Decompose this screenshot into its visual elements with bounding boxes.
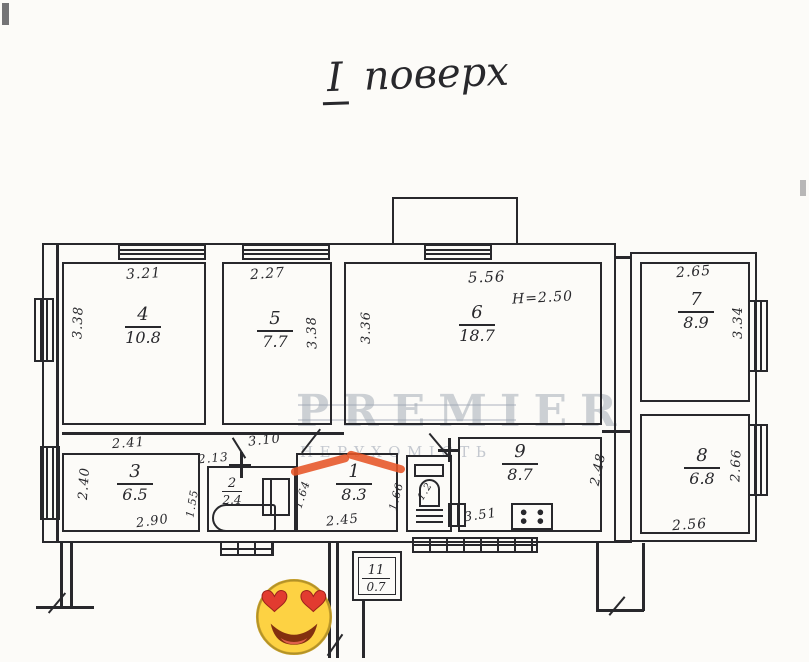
wall-connector xyxy=(616,256,632,259)
tick-mark xyxy=(609,596,626,616)
door-mark xyxy=(438,449,458,452)
porch-line xyxy=(362,601,365,658)
room-3-label: 3 6.5 xyxy=(106,463,164,503)
porch-line xyxy=(36,606,94,609)
corridor-wall xyxy=(62,432,344,435)
window xyxy=(34,298,54,362)
dim-room5-right: 3.38 xyxy=(304,316,320,349)
stove-icon xyxy=(511,503,553,530)
scan-artifact xyxy=(2,3,9,25)
porch-line xyxy=(70,543,73,607)
room-5-label: 5 7.7 xyxy=(244,310,306,350)
window xyxy=(748,300,768,372)
porch-line xyxy=(642,543,645,611)
room-6-label: 6 18.7 xyxy=(442,304,512,344)
dim-room6-left: 3.36 xyxy=(359,311,374,344)
heart-eyes-emoji-icon xyxy=(254,577,334,657)
window xyxy=(748,424,768,496)
veranda-window xyxy=(220,541,274,556)
room-8-label: 8 6.8 xyxy=(672,447,732,487)
dim-room4-left: 3.38 xyxy=(70,306,86,339)
wall-line xyxy=(602,430,630,433)
window xyxy=(424,244,492,260)
sink-icon xyxy=(262,478,290,516)
door-mark xyxy=(229,464,251,467)
window xyxy=(242,244,330,260)
dim-room6-top: 5.56 xyxy=(468,267,506,286)
dim-room7-top: 2.65 xyxy=(675,263,711,281)
dim-room4-top: 3.21 xyxy=(126,265,162,283)
window xyxy=(118,244,206,260)
wall-connector xyxy=(616,540,632,543)
toilet-base-icon xyxy=(416,509,443,525)
floor-word: поверх xyxy=(363,49,509,100)
window xyxy=(40,446,60,520)
room-9-label: 9 8.7 xyxy=(492,443,548,483)
dim-room2-top: 2.13 xyxy=(197,450,229,467)
dim-room5-top: 2.27 xyxy=(249,265,285,283)
dim-ceiling-height: H=2.50 xyxy=(512,288,574,307)
porch-line xyxy=(596,543,599,611)
dim-room8-bottom: 2.56 xyxy=(671,516,707,534)
scan-artifact xyxy=(800,180,806,196)
dim-room7-right: 3.34 xyxy=(731,306,746,339)
floor-plan-canvas: Iповерх PREMIER НЕРУХОМІСТЬ xyxy=(0,0,809,662)
room-1-label: 1 8.3 xyxy=(326,463,382,503)
dim-room3-left: 2.40 xyxy=(76,467,93,501)
page-title: Iповерх xyxy=(321,49,509,101)
dim-room3-top: 2.41 xyxy=(112,435,146,452)
room-4-label: 4 10.8 xyxy=(110,306,176,346)
room-7-label: 7 8.9 xyxy=(666,291,726,331)
floor-numeral: I xyxy=(321,54,349,105)
porch-line xyxy=(596,609,644,612)
dim-room8-right: 2.66 xyxy=(728,449,744,482)
toilet-cistern-icon xyxy=(414,464,444,477)
room-2-label: 2 2.4 xyxy=(208,474,256,506)
porch-top-outline xyxy=(392,197,518,245)
tick-mark xyxy=(48,592,66,613)
closet-11-label: 11 0.7 xyxy=(356,561,396,593)
veranda-window xyxy=(412,537,538,553)
